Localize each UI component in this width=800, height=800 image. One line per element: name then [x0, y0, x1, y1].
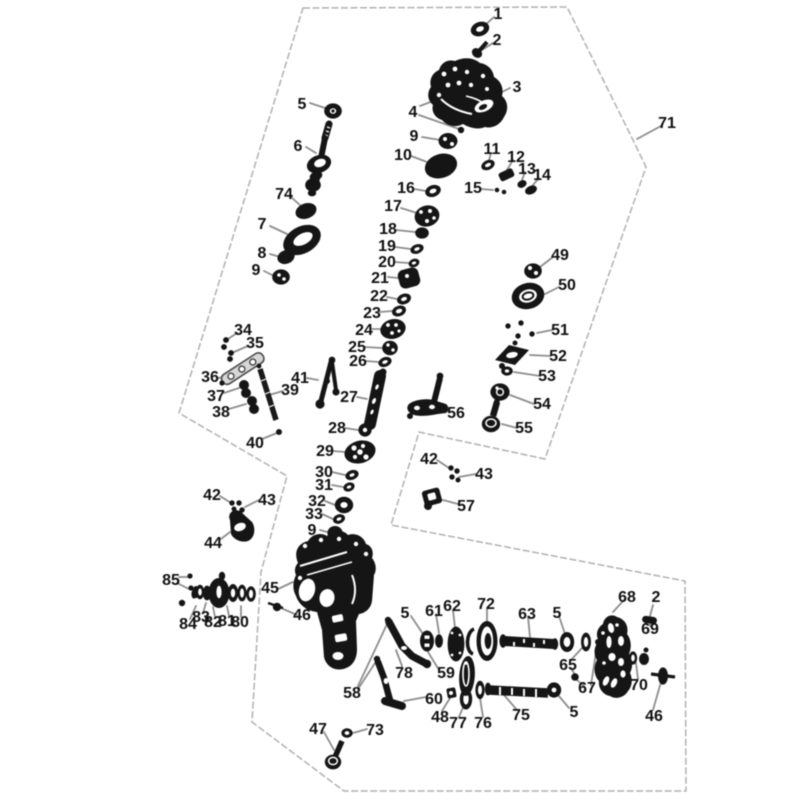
- svg-text:27: 27: [340, 389, 358, 406]
- svg-text:44: 44: [204, 535, 222, 552]
- svg-text:2: 2: [493, 32, 502, 49]
- svg-text:42: 42: [420, 451, 438, 468]
- svg-text:37: 37: [207, 388, 225, 405]
- svg-text:46: 46: [293, 607, 311, 624]
- svg-text:55: 55: [515, 420, 533, 437]
- svg-text:54: 54: [533, 396, 551, 413]
- svg-text:45: 45: [261, 580, 279, 597]
- svg-text:10: 10: [394, 147, 412, 164]
- svg-text:19: 19: [378, 238, 396, 255]
- svg-text:5: 5: [298, 96, 307, 113]
- svg-text:29: 29: [316, 443, 334, 460]
- svg-text:14: 14: [533, 167, 551, 184]
- svg-text:5: 5: [570, 704, 579, 721]
- svg-text:78: 78: [395, 665, 413, 682]
- svg-text:28: 28: [328, 420, 346, 437]
- svg-text:67: 67: [578, 680, 596, 697]
- svg-text:35: 35: [246, 335, 264, 352]
- svg-text:71: 71: [658, 115, 676, 132]
- svg-text:5: 5: [553, 605, 562, 622]
- svg-text:52: 52: [549, 348, 567, 365]
- svg-text:62: 62: [443, 598, 461, 615]
- svg-text:20: 20: [378, 254, 396, 271]
- svg-text:69: 69: [641, 621, 659, 638]
- svg-text:47: 47: [309, 721, 327, 738]
- svg-text:38: 38: [212, 404, 230, 421]
- svg-text:9: 9: [308, 522, 317, 539]
- svg-text:11: 11: [484, 141, 501, 158]
- svg-text:24: 24: [355, 322, 373, 339]
- svg-text:49: 49: [551, 247, 569, 264]
- svg-text:77: 77: [449, 715, 467, 732]
- svg-text:72: 72: [477, 596, 495, 613]
- svg-text:46: 46: [645, 708, 663, 725]
- svg-text:1: 1: [494, 6, 503, 23]
- svg-text:75: 75: [512, 707, 530, 724]
- svg-text:8: 8: [258, 245, 267, 262]
- svg-text:68: 68: [618, 589, 636, 606]
- svg-text:22: 22: [370, 288, 388, 305]
- svg-text:63: 63: [518, 606, 536, 623]
- svg-text:3: 3: [513, 79, 522, 96]
- svg-text:50: 50: [558, 277, 576, 294]
- svg-text:9: 9: [252, 262, 261, 279]
- svg-text:23: 23: [363, 305, 381, 322]
- svg-text:17: 17: [384, 198, 402, 215]
- svg-text:85: 85: [162, 572, 180, 589]
- svg-text:80: 80: [231, 614, 249, 631]
- svg-text:76: 76: [474, 715, 492, 732]
- svg-text:2: 2: [652, 589, 661, 606]
- svg-text:43: 43: [475, 466, 493, 483]
- svg-text:74: 74: [275, 186, 293, 203]
- svg-text:56: 56: [447, 405, 465, 422]
- svg-text:51: 51: [551, 322, 569, 339]
- svg-text:36: 36: [201, 369, 219, 386]
- svg-text:48: 48: [431, 709, 449, 726]
- svg-text:6: 6: [294, 138, 303, 155]
- svg-text:26: 26: [349, 353, 367, 370]
- svg-text:58: 58: [343, 685, 361, 702]
- svg-text:60: 60: [425, 691, 443, 708]
- svg-text:7: 7: [258, 216, 267, 233]
- svg-text:5: 5: [401, 605, 410, 622]
- svg-text:33: 33: [305, 506, 323, 523]
- svg-text:70: 70: [630, 677, 648, 694]
- svg-text:18: 18: [379, 221, 397, 238]
- svg-text:43: 43: [258, 492, 276, 509]
- svg-text:59: 59: [437, 665, 455, 682]
- svg-text:15: 15: [464, 180, 482, 197]
- svg-text:21: 21: [371, 270, 389, 287]
- svg-text:61: 61: [425, 603, 443, 620]
- svg-text:41: 41: [291, 370, 309, 387]
- svg-text:31: 31: [315, 477, 333, 494]
- svg-text:9: 9: [410, 128, 419, 145]
- svg-text:16: 16: [397, 180, 415, 197]
- svg-text:73: 73: [366, 722, 384, 739]
- svg-text:42: 42: [203, 487, 221, 504]
- svg-text:40: 40: [246, 435, 264, 452]
- svg-text:65: 65: [559, 657, 577, 674]
- svg-text:57: 57: [457, 498, 475, 515]
- svg-text:4: 4: [409, 104, 418, 121]
- svg-text:53: 53: [538, 368, 556, 385]
